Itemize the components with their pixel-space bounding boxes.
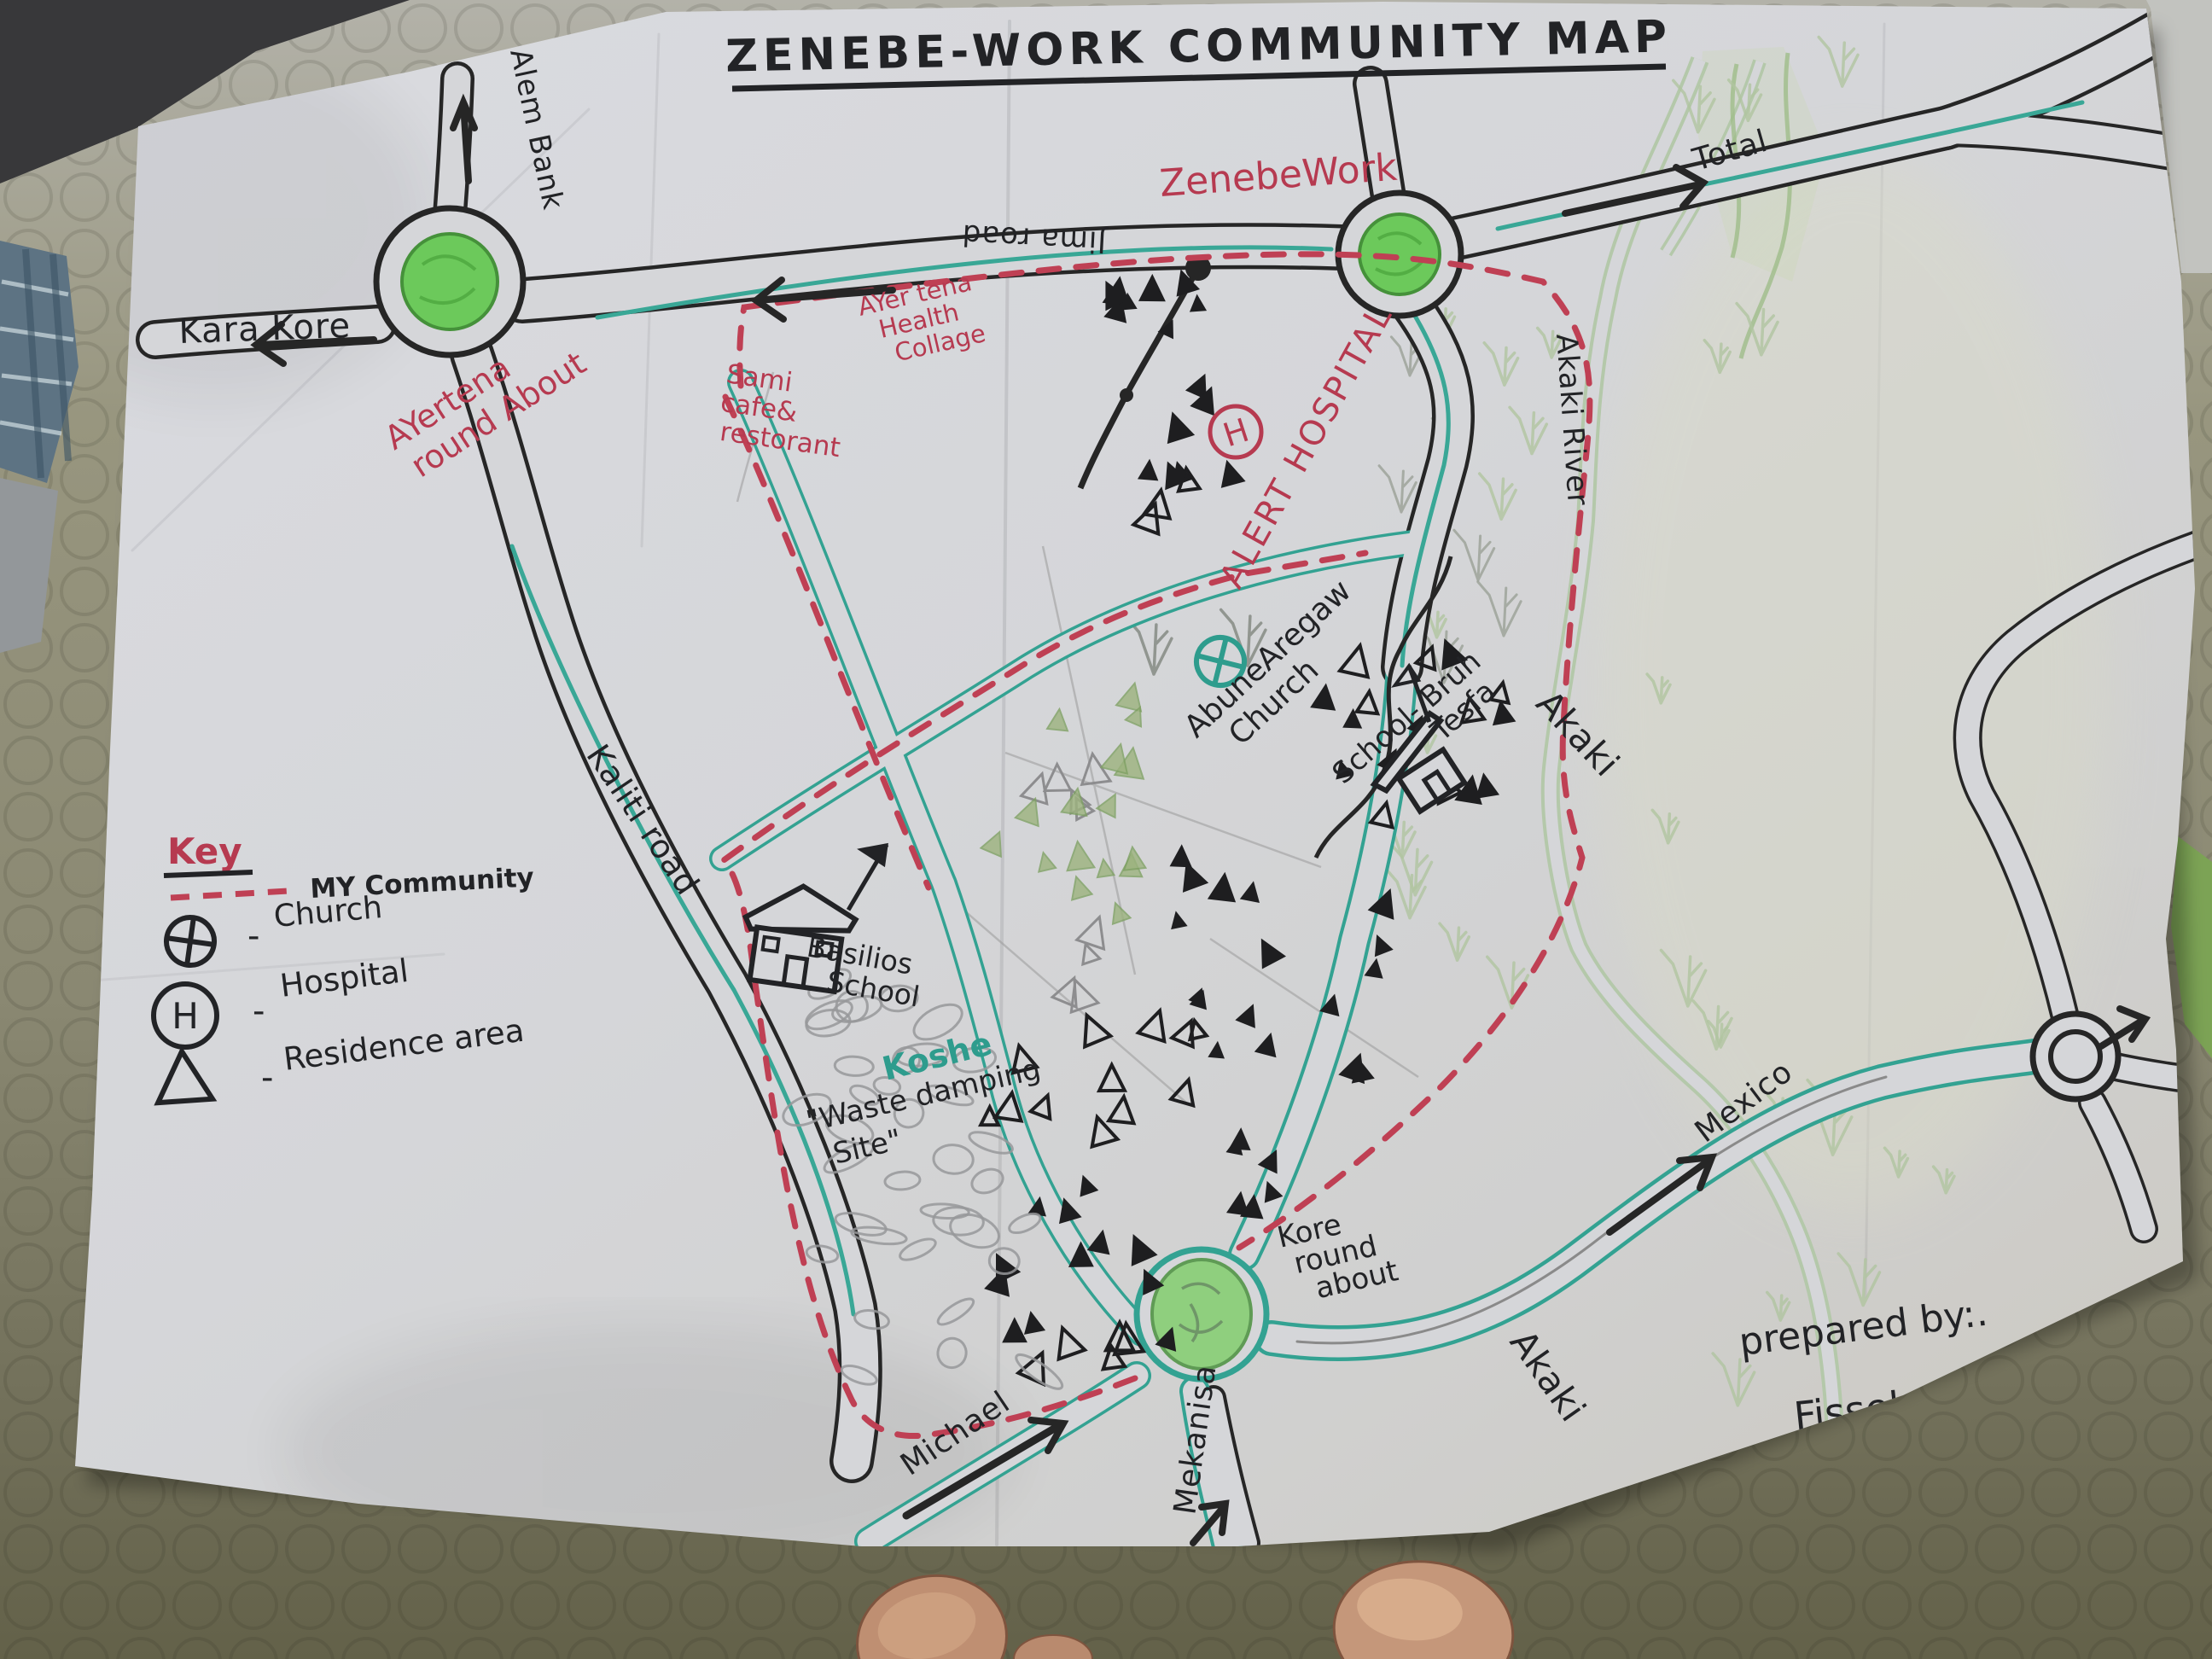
road-label-kara-kore: Kara Kore xyxy=(178,306,352,352)
legend-dash: - xyxy=(253,992,265,1031)
photo-of-hand-drawn-map: H ZENEBE-WORK COMMUNITY MAP Alem Ban xyxy=(0,0,2212,1659)
legend-dash: - xyxy=(247,917,259,956)
roundabout-island xyxy=(1152,1260,1251,1369)
legend-heading-underline xyxy=(164,872,253,876)
roundabout-ayertena xyxy=(376,208,523,355)
legend-heading: Key xyxy=(167,830,242,872)
roundabout-kore xyxy=(1137,1249,1266,1379)
junction-dot xyxy=(1120,388,1133,402)
roundabout-island xyxy=(402,234,498,329)
roundabout-island xyxy=(1359,214,1440,294)
roundabout-east xyxy=(2033,1014,2118,1099)
legend-dash: - xyxy=(261,1058,273,1097)
svg-text:H: H xyxy=(172,995,199,1037)
community-map-photo: H ZENEBE-WORK COMMUNITY MAP Alem Ban xyxy=(0,0,2212,1659)
